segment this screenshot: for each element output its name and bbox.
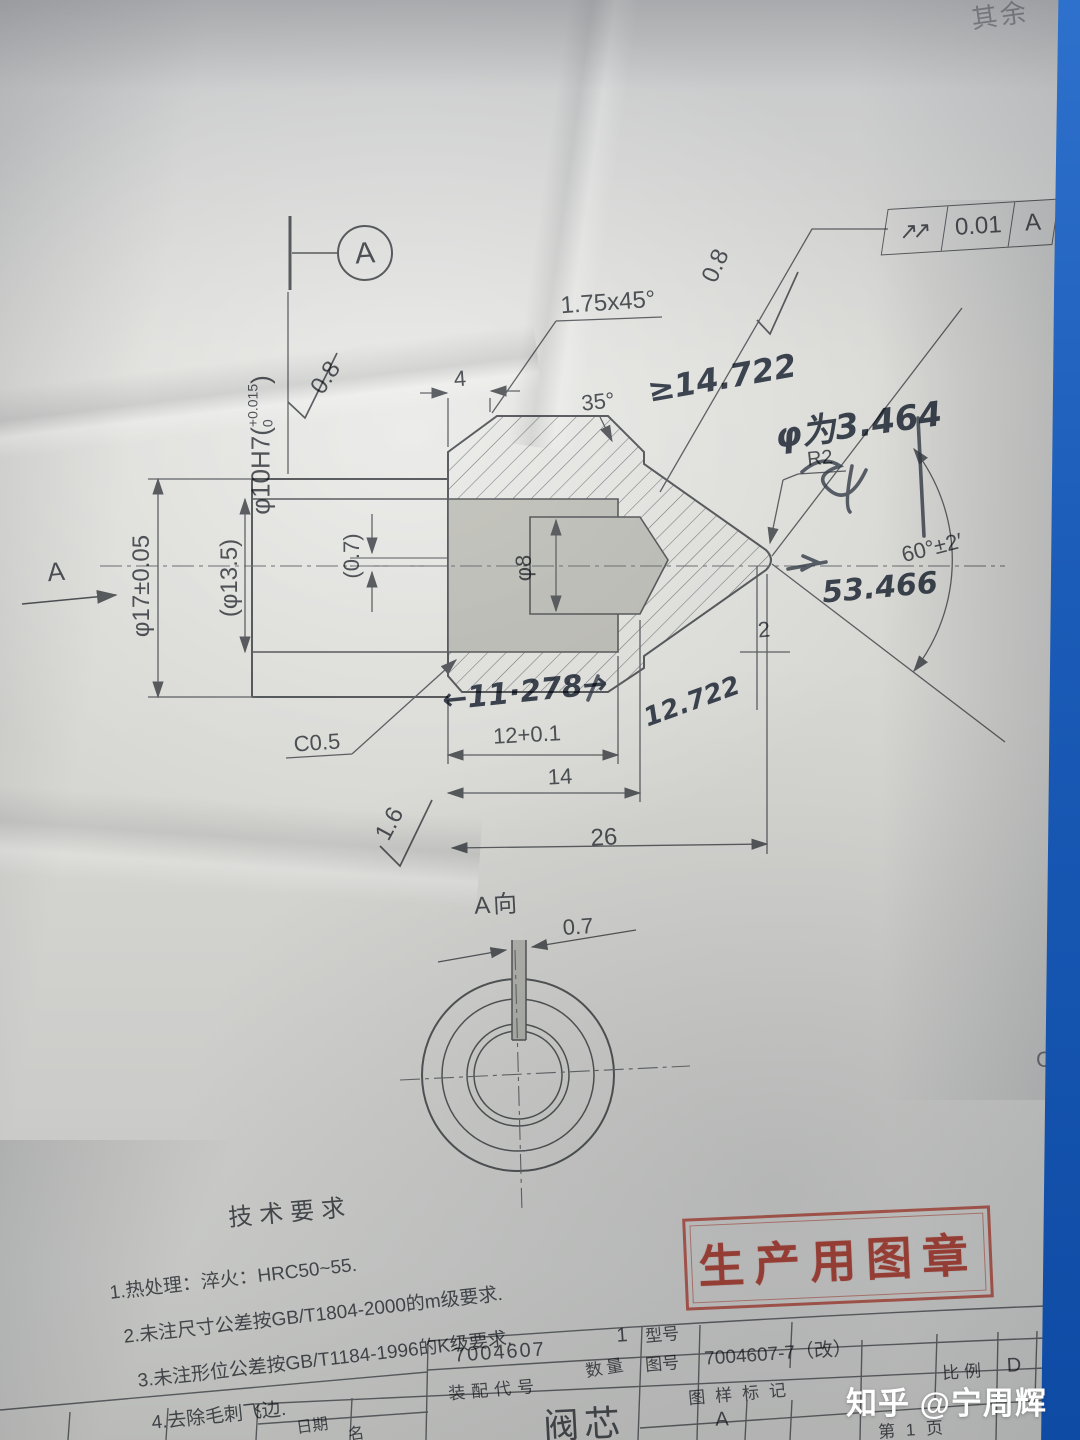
part-name: 阀芯	[542, 1394, 627, 1440]
bore-callout-prefix: φ10H7(	[246, 427, 276, 515]
photo-of-engineering-drawing: 其余 C A φ10H7(+0.0150) 0.8 0.8 1.6 ↗↗ 0.0…	[0, 0, 1080, 1440]
end-view-circles	[400, 930, 690, 1212]
tolerance-value: 0.01	[942, 202, 1016, 251]
name-label: 名	[346, 1419, 365, 1440]
revision-letter: A	[715, 1408, 729, 1431]
tolerance-lower: 0	[261, 384, 276, 427]
tolerance-datum: A	[1009, 200, 1059, 247]
zhihu-watermark: 知乎 @宁周辉	[846, 1378, 1047, 1423]
drawing-no-label: 图号	[644, 1348, 680, 1376]
end-view-title: A向	[473, 883, 521, 920]
zone-letter-c: C	[1036, 1047, 1052, 1073]
dim-dia8-label: φ8	[511, 555, 537, 582]
view-direction-label: A	[46, 556, 66, 588]
datum-label: A	[354, 236, 376, 271]
dim-2-label: 2	[757, 617, 771, 644]
runout-symbol-icon: ↗↗	[882, 206, 949, 254]
model-label: 型号	[644, 1319, 680, 1347]
dim-12-label: 12+0.1	[492, 720, 561, 750]
zone-letter-d: D	[1006, 1354, 1022, 1378]
chamfer-c05-label: C0.5	[293, 728, 341, 757]
dim-dia13-5-label: (φ13.5)	[216, 539, 244, 617]
dim-26-label: 26	[590, 823, 618, 852]
dim-dia17-label: φ17±0.05	[128, 535, 156, 637]
date-label: 日期	[294, 1410, 329, 1438]
end-view-slot-dim: 0.7	[562, 913, 594, 941]
bore-callout-suffix: )	[246, 375, 276, 384]
datum-symbol	[290, 216, 392, 290]
view-direction-arrow	[22, 595, 116, 604]
dim-14-label: 14	[547, 763, 573, 790]
dim-slot-depth-label: (0.7)	[339, 533, 365, 578]
tolerance-upper: +0.015	[245, 384, 260, 427]
bore-callout: φ10H7(+0.0150)	[246, 375, 279, 515]
sheet-frame	[1045, 986, 1080, 1305]
angle-35-label: 35°	[580, 387, 616, 416]
quantity-value: 1	[616, 1324, 629, 1348]
dim-4-label: 4	[453, 366, 467, 393]
production-stamp: 生产用图章	[682, 1205, 994, 1310]
stamp-inner-border	[689, 1213, 986, 1304]
